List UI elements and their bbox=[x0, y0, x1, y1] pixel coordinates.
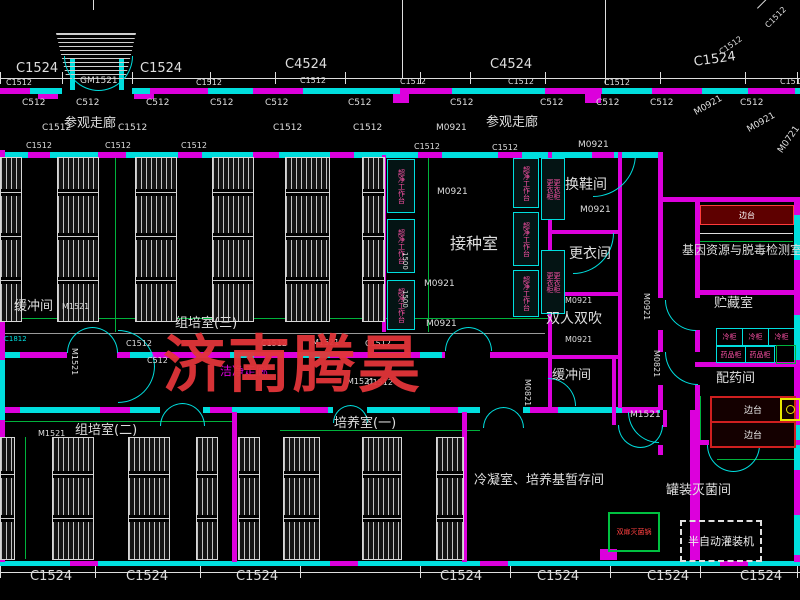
clean-bench-label: 超净工作台 bbox=[523, 222, 530, 257]
room-label: C1524 bbox=[440, 570, 482, 583]
wall-segment bbox=[150, 88, 208, 94]
culture-rack bbox=[362, 157, 385, 322]
dim-label: C1512 bbox=[414, 143, 440, 151]
dim-label: C1512 bbox=[273, 124, 302, 133]
wall-segment bbox=[530, 407, 558, 413]
dim-label: C512 bbox=[348, 99, 371, 108]
dim-label: C512 bbox=[146, 99, 169, 108]
room-label: 参观走廊 bbox=[486, 116, 538, 129]
room-label: C1524 bbox=[693, 50, 737, 69]
room-label: C1524 bbox=[30, 570, 72, 583]
dim-label: C512 bbox=[650, 99, 673, 108]
wall-segment bbox=[548, 355, 620, 359]
dim-label: C512 bbox=[596, 99, 619, 108]
locker-cabinet-label: 更衣柜 bbox=[553, 179, 560, 200]
room-label: 培养室(一) bbox=[334, 417, 396, 430]
dim-label: 1500 bbox=[401, 252, 408, 270]
side-bench-label: 边台 bbox=[744, 403, 762, 416]
medicine-cabinet-label: 药品柜 bbox=[721, 350, 742, 360]
side-bench-label: 边台 bbox=[744, 428, 762, 441]
dimension-line bbox=[132, 72, 133, 84]
dim-label: C1512 bbox=[353, 124, 382, 133]
double-door-leaf bbox=[483, 407, 504, 428]
dimension-line bbox=[697, 241, 793, 242]
wall-segment bbox=[658, 385, 663, 410]
culture-rack bbox=[57, 157, 99, 322]
room-label: 冷凝室、培养基暂存间 bbox=[474, 474, 604, 487]
dim-label: M0721 bbox=[777, 125, 800, 155]
wall-segment bbox=[70, 561, 98, 566]
room-label: C1524 bbox=[16, 62, 58, 75]
dim-label: C1512 bbox=[6, 79, 32, 87]
side-bench-band-label: 边台 bbox=[739, 210, 755, 221]
double-door-leaf bbox=[733, 445, 760, 472]
dimension-line bbox=[545, 72, 546, 84]
watermark-text: 济南腾昊 bbox=[163, 334, 423, 396]
wall-segment bbox=[418, 152, 442, 158]
wall-segment bbox=[232, 412, 237, 562]
wall-segment bbox=[330, 561, 358, 566]
dimension-line bbox=[697, 233, 793, 234]
door-arc bbox=[665, 300, 696, 331]
dimension-line bbox=[95, 566, 96, 578]
clean-bench: 超净工作台 bbox=[387, 159, 415, 213]
dim-label: M0921 bbox=[746, 112, 777, 135]
double-door-leaf bbox=[160, 403, 183, 426]
locker-cabinet-label: 更衣柜 bbox=[546, 272, 553, 293]
wall-segment bbox=[658, 152, 663, 298]
culture-rack bbox=[362, 437, 402, 560]
dimension-line bbox=[610, 566, 611, 578]
dim-label: GM1521 bbox=[80, 77, 118, 86]
clean-bench-label: 超净工作台 bbox=[523, 166, 530, 201]
dimension-line bbox=[745, 72, 746, 84]
dim-label: M1521 bbox=[38, 430, 65, 438]
dim-label: C1512 bbox=[118, 124, 147, 133]
culture-rack bbox=[196, 437, 218, 560]
dimension-line bbox=[660, 72, 661, 84]
wall-segment bbox=[98, 152, 126, 158]
dim-label: C512 bbox=[22, 99, 45, 108]
cold-cabinet: 冷柜 bbox=[742, 328, 769, 346]
semi-auto-filling-machine-label: 半自动灌装机 bbox=[688, 533, 754, 549]
sink bbox=[780, 398, 800, 421]
medicine-cabinet: 药品柜 bbox=[745, 346, 775, 363]
wall-segment bbox=[612, 357, 616, 425]
wall-segment bbox=[695, 330, 700, 352]
room-label: 参观走廊 bbox=[64, 117, 116, 130]
dimension-line bbox=[700, 566, 701, 578]
room-label: C1524 bbox=[126, 570, 168, 583]
dim-label: M1521 bbox=[70, 348, 78, 375]
dim-label: M0821 bbox=[523, 379, 531, 406]
faucet-icon bbox=[786, 405, 795, 414]
dimension-line bbox=[25, 437, 26, 559]
cold-cabinet-label: 冷柜 bbox=[723, 332, 737, 342]
culture-rack bbox=[128, 437, 170, 560]
wall-segment bbox=[480, 561, 508, 566]
dim-label: C512 bbox=[740, 99, 763, 108]
clean-bench-label: 超净工作台 bbox=[523, 276, 530, 311]
double-door-leaf bbox=[118, 366, 155, 403]
dim-label: C1512 bbox=[780, 78, 800, 86]
dimension-line bbox=[275, 72, 276, 84]
cold-cabinet: 冷柜 bbox=[768, 328, 795, 346]
dim-label: M1521 bbox=[62, 303, 89, 311]
door-arc bbox=[665, 352, 698, 385]
dimension-line bbox=[93, 0, 94, 10]
dimension-line bbox=[200, 566, 201, 578]
culture-rack bbox=[135, 157, 177, 322]
dim-label: M0921 bbox=[642, 293, 650, 320]
wall-segment bbox=[253, 88, 303, 94]
dimension-line bbox=[0, 72, 1, 84]
equipment-box bbox=[776, 345, 796, 364]
dimension-line bbox=[428, 155, 429, 332]
dim-label: C1512 bbox=[126, 340, 152, 348]
dimension-line bbox=[62, 72, 63, 84]
wall-segment bbox=[695, 290, 800, 295]
culture-rack bbox=[52, 437, 94, 560]
wall-segment bbox=[748, 88, 795, 94]
dim-label: M1521 bbox=[630, 411, 661, 420]
locker-cabinet: 更衣柜更衣柜 bbox=[541, 158, 565, 220]
medicine-cabinet-label: 药品柜 bbox=[750, 350, 771, 360]
locker-cabinet-label: 更衣柜 bbox=[546, 179, 553, 200]
dim-label: M0921 bbox=[426, 320, 457, 329]
cad-floor-plan: 济南腾昊 超净工作台超净工作台超净工作台超净工作台超净工作台超净工作台更衣柜更衣… bbox=[0, 0, 800, 600]
dimension-line bbox=[510, 566, 511, 578]
dim-label: M0921 bbox=[436, 124, 467, 133]
dim-label: C512 bbox=[265, 99, 288, 108]
side-bench: 边台 bbox=[710, 421, 796, 448]
double-door-leaf bbox=[503, 407, 524, 428]
room-label: C1524 bbox=[537, 570, 579, 583]
dimension-line bbox=[700, 396, 701, 442]
dim-label: M0921 bbox=[580, 206, 611, 215]
room-label: 配药间 bbox=[716, 372, 755, 385]
wall-segment bbox=[210, 407, 232, 413]
room-label: 更衣间 bbox=[569, 247, 611, 261]
dim-label: C1512 bbox=[400, 78, 426, 86]
clean-bench-label: 超净工作台 bbox=[398, 169, 405, 204]
double-door-sterilizer-label: 双扉灭菌锅 bbox=[617, 527, 652, 537]
culture-rack bbox=[238, 437, 260, 560]
culture-rack bbox=[212, 157, 254, 322]
dim-label: C1512 bbox=[26, 142, 52, 150]
dim-label: C1512 bbox=[492, 144, 518, 152]
wall-segment bbox=[0, 360, 5, 420]
wall-segment bbox=[658, 445, 663, 455]
dimension-line bbox=[300, 566, 301, 578]
dim-label: C512 bbox=[210, 99, 233, 108]
dim-label: M0921 bbox=[578, 141, 609, 150]
dim-label: 1500 bbox=[401, 290, 408, 308]
cold-cabinet-label: 冷柜 bbox=[775, 332, 789, 342]
dim-label: M0921 bbox=[693, 95, 724, 118]
room-label: C4524 bbox=[285, 58, 327, 71]
side-bench-band: 边台 bbox=[700, 205, 794, 225]
double-door-leaf bbox=[445, 327, 469, 351]
wall-segment bbox=[490, 352, 548, 358]
wall-segment bbox=[300, 407, 328, 413]
double-door-leaf bbox=[707, 445, 734, 472]
room-label: C1524 bbox=[740, 570, 782, 583]
wall-segment bbox=[660, 197, 800, 202]
wall-segment bbox=[663, 410, 667, 427]
wall-segment bbox=[618, 152, 622, 408]
dimension-line bbox=[345, 72, 346, 84]
medicine-cabinet: 药品柜 bbox=[716, 346, 746, 363]
room-label: 基因资源与脱毒检测室 bbox=[682, 244, 800, 256]
cold-cabinet: 冷柜 bbox=[716, 328, 743, 346]
culture-rack bbox=[0, 437, 15, 560]
wall-segment bbox=[658, 330, 663, 352]
dim-label: C512 bbox=[76, 99, 99, 108]
wall-segment bbox=[253, 152, 279, 158]
double-door-leaf bbox=[182, 403, 205, 426]
dimension-line bbox=[605, 0, 606, 78]
room-label: 换鞋间 bbox=[565, 178, 607, 192]
dimension-line bbox=[0, 566, 1, 578]
culture-rack bbox=[285, 157, 330, 322]
wall-segment bbox=[794, 515, 800, 555]
culture-rack bbox=[436, 437, 464, 560]
dim-label: M0921 bbox=[437, 188, 468, 197]
clean-bench: 超净工作台 bbox=[513, 158, 539, 208]
dim-label: C1512 bbox=[181, 142, 207, 150]
dim-label: M0921 bbox=[565, 297, 592, 305]
room-label: 缓冲间 bbox=[552, 369, 591, 382]
dim-label: C512 bbox=[540, 99, 563, 108]
wall-segment bbox=[420, 352, 442, 358]
dim-label: C1512 bbox=[196, 79, 222, 87]
room-label: 缓冲间 bbox=[14, 300, 53, 313]
double-door-leaf bbox=[468, 327, 492, 351]
dim-label: C1512 bbox=[105, 142, 131, 150]
dimension-line bbox=[797, 566, 798, 578]
room-label: 接种室 bbox=[450, 236, 498, 252]
dimension-line bbox=[757, 0, 797, 9]
wall-segment bbox=[652, 88, 702, 94]
room-label: C1524 bbox=[140, 62, 182, 75]
dim-label: C1512 bbox=[508, 78, 534, 86]
wall-segment bbox=[0, 88, 30, 94]
culture-rack bbox=[0, 157, 22, 322]
semi-auto-filling-machine: 半自动灌装机 bbox=[680, 520, 762, 562]
wall-segment bbox=[28, 152, 50, 158]
room-label: 组培室(二) bbox=[75, 424, 137, 437]
dim-label: M0921 bbox=[424, 280, 455, 289]
wall-segment bbox=[430, 407, 458, 413]
dimension-line bbox=[420, 566, 421, 578]
wall-segment bbox=[178, 152, 202, 158]
dim-label: C1512 bbox=[604, 79, 630, 87]
wall-segment bbox=[100, 407, 130, 413]
dim-label: C1512 bbox=[764, 6, 788, 30]
room-label: C4524 bbox=[490, 58, 532, 71]
dim-label: C1812 bbox=[4, 336, 27, 343]
dim-label: C512 bbox=[450, 99, 473, 108]
wall-segment bbox=[0, 407, 160, 413]
room-label: 罐装灭菌间 bbox=[666, 484, 731, 497]
cold-cabinet-label: 冷柜 bbox=[749, 332, 763, 342]
clean-bench: 超净工作台 bbox=[513, 212, 539, 266]
room-label: C1524 bbox=[236, 570, 278, 583]
dimension-line bbox=[115, 157, 116, 332]
double-door-leaf bbox=[618, 425, 641, 448]
wall-segment bbox=[330, 152, 354, 158]
wall-segment bbox=[393, 94, 409, 103]
room-label: C1524 bbox=[647, 570, 689, 583]
culture-rack bbox=[283, 437, 320, 560]
room-label: 双人双吹 bbox=[546, 312, 602, 326]
dim-label: C1512 bbox=[300, 77, 326, 85]
dimension-line bbox=[402, 0, 403, 78]
clean-bench: 超净工作台 bbox=[513, 270, 539, 317]
locker-cabinet-label: 更衣柜 bbox=[553, 272, 560, 293]
locker-cabinet: 更衣柜更衣柜 bbox=[541, 250, 565, 314]
dim-label: M0921 bbox=[565, 336, 592, 344]
dimension-line bbox=[470, 72, 471, 84]
double-door-sterilizer: 双扉灭菌锅 bbox=[608, 512, 660, 552]
room-label: 贮藏室 bbox=[714, 297, 753, 310]
dim-label: M0821 bbox=[652, 350, 660, 377]
